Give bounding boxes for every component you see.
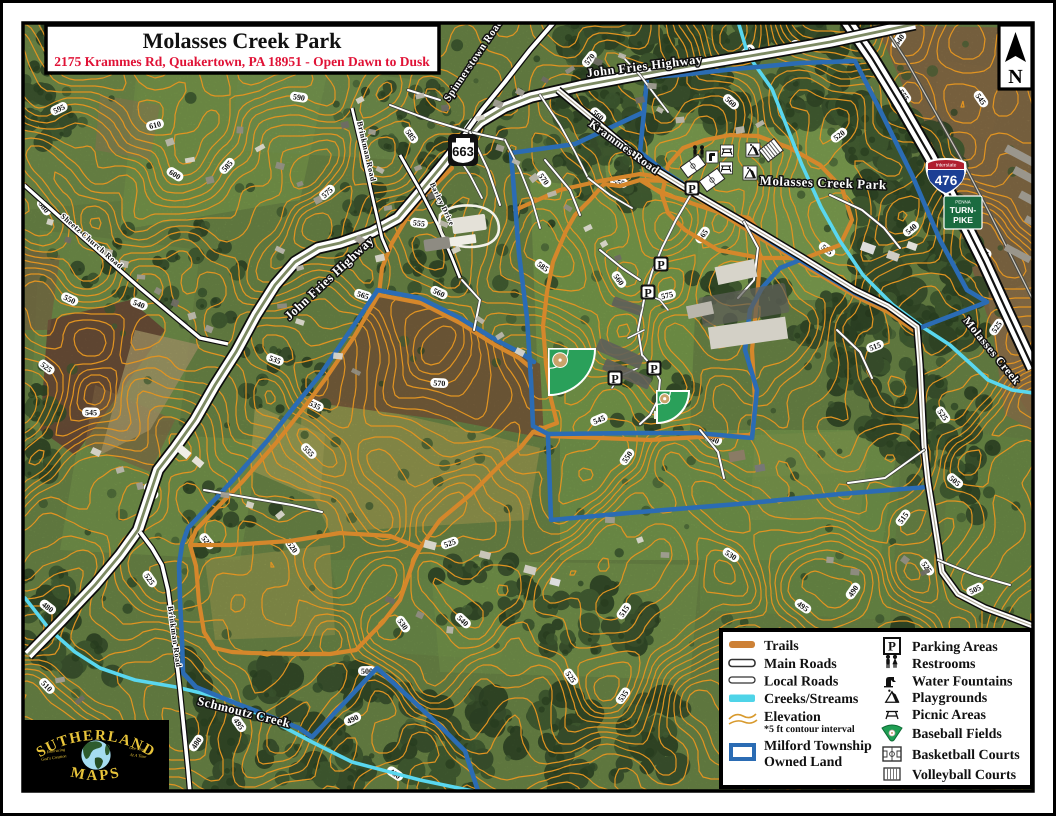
svg-text:545: 545 [85,408,97,417]
svg-text:TURN-: TURN- [950,205,977,215]
svg-text:Creeks/Streams: Creeks/Streams [764,692,859,707]
svg-text:PIKE: PIKE [953,215,973,225]
svg-text:Parking Areas: Parking Areas [912,640,998,655]
svg-text:PENNA: PENNA [955,200,971,205]
svg-text:P: P [650,362,658,376]
svg-text:590: 590 [292,92,305,103]
svg-text:Molasses Creek Park: Molasses Creek Park [143,28,343,53]
svg-text:Basketball Courts: Basketball Courts [912,748,1020,763]
svg-text:P: P [644,286,652,300]
svg-text:570: 570 [433,379,445,388]
svg-text:476: 476 [935,173,958,188]
svg-text:Elevation: Elevation [764,710,821,725]
svg-text:P: P [888,639,896,654]
svg-text:Picnic Areas: Picnic Areas [912,708,987,723]
svg-text:Restrooms: Restrooms [912,657,976,672]
svg-text:Playgrounds: Playgrounds [912,691,988,706]
svg-text:N: N [1008,66,1023,88]
svg-text:*5 ft contour interval: *5 ft contour interval [764,724,855,735]
svg-text:2175 Krammes Rd, Quakertown, P: 2175 Krammes Rd, Quakertown, PA 18951 - … [54,54,430,69]
svg-text:555: 555 [412,218,425,228]
svg-text:Milford Township: Milford Township [764,739,872,754]
svg-text:P: P [657,258,665,272]
svg-text:663: 663 [452,144,474,159]
svg-text:Main Roads: Main Roads [764,657,837,672]
svg-text:Baseball Fields: Baseball Fields [912,727,1002,742]
svg-text:Trails: Trails [764,639,799,654]
svg-text:P: P [611,372,619,386]
svg-text:Water Fountains: Water Fountains [912,675,1013,690]
svg-text:Interstate: Interstate [936,163,957,169]
svg-text:Volleyball Courts: Volleyball Courts [912,768,1017,783]
svg-text:Owned Land: Owned Land [764,755,842,770]
svg-text:Local Roads: Local Roads [764,675,839,690]
svg-text:P: P [688,182,696,196]
